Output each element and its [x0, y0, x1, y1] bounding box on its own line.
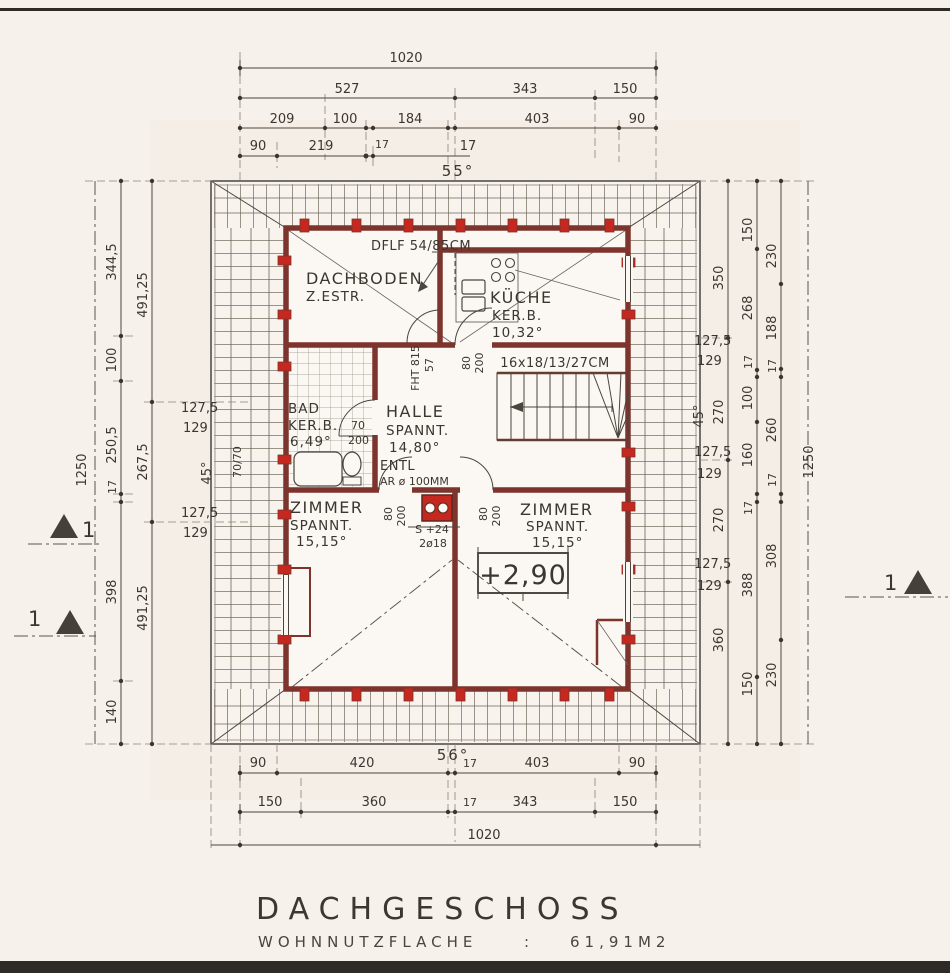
title-block: DACHGESCHOSS WOHNNUTZFLACHE : 61,91M2 — [256, 892, 670, 951]
room-zimmer-left-area: 15,15° — [296, 534, 347, 550]
dim-top-219: 219 — [309, 139, 334, 154]
bathtub — [294, 452, 342, 486]
right-door-width: 80 — [477, 507, 490, 521]
dim-bot-17b: 17 — [463, 796, 477, 809]
stair-note: 16x18/13/27CM — [500, 356, 609, 371]
dim-left-total: 1250 — [75, 453, 90, 486]
drawing-subtitle-colon: : — [524, 933, 534, 951]
scanned-floorplan-page: +2,90 DFLF 54/85CM DACHBODEN Z.ESTR. KÜC… — [0, 0, 950, 973]
dim-top-90a: 90 — [250, 139, 267, 154]
dim-right-270a: 270 — [712, 400, 727, 425]
roof-angle-right: 45° — [692, 404, 707, 427]
dim-left-17: 17 — [106, 480, 119, 494]
room-dachboden-name: DACHBODEN — [306, 269, 423, 288]
room-dachboden-type: Z.ESTR. — [306, 289, 365, 305]
window-left-zimmer — [281, 575, 291, 635]
skylight-label: DFLF 54/85CM — [371, 239, 471, 254]
dim-right-b150a: 150 — [741, 218, 756, 243]
floorplan-drawing: +2,90 DFLF 54/85CM DACHBODEN Z.ESTR. KÜC… — [0, 0, 950, 973]
bad-door-width: 70 — [351, 419, 365, 432]
room-bad-name: BAD — [288, 401, 320, 417]
bad-door-height: 200 — [348, 434, 369, 447]
dim-right-c17a: 17 — [766, 359, 779, 373]
dim-bot-360: 360 — [362, 795, 387, 810]
dim-left-knee1b: 129 — [183, 421, 208, 436]
fht-label: FHT 815 — [409, 345, 422, 391]
rafter-hatch-left — [214, 228, 286, 689]
chimney-label-2: 2ø18 — [419, 537, 447, 550]
chimney — [422, 495, 452, 521]
dim-top-17b: 17 — [460, 139, 477, 154]
kitchen-door-height: 200 — [473, 353, 486, 374]
dim-right-b388: 388 — [741, 573, 756, 598]
dim-left-knee2a: 127,5 — [181, 506, 218, 521]
dim-right-b268: 268 — [741, 296, 756, 321]
drawing-title: DACHGESCHOSS — [256, 892, 629, 927]
dim-right-c188: 188 — [765, 316, 780, 341]
dim-top-403: 403 — [525, 112, 550, 127]
dim-top-100: 100 — [333, 112, 358, 127]
dim-bot-420: 420 — [350, 756, 375, 771]
toilet-cistern — [343, 477, 361, 485]
vent-label-1: ENTL — [380, 459, 415, 474]
dim-left-491a: 491,25 — [136, 272, 151, 318]
room-zimmer-right-area: 15,15° — [532, 535, 583, 551]
left-door-width: 80 — [382, 507, 395, 521]
room-kueche-type: KER.B. — [492, 308, 542, 324]
toilet — [343, 452, 361, 476]
chimney-label-1: S +24 — [415, 523, 449, 536]
dim-right-270b: 270 — [712, 508, 727, 533]
dim-right-b100: 100 — [741, 386, 756, 411]
dim-left-344: 344,5 — [105, 243, 120, 280]
dim-right-knee1b: 129 — [697, 354, 722, 369]
dim-left-250: 250,5 — [105, 426, 120, 463]
post-size-label: 70/70 — [231, 446, 244, 478]
dim-top-90b: 90 — [629, 112, 646, 127]
dim-left-140: 140 — [105, 700, 120, 725]
left-door-height: 200 — [395, 506, 408, 527]
room-kueche-name: KÜCHE — [490, 288, 553, 307]
dim-bot-150b: 150 — [613, 795, 638, 810]
dim-left-267: 267,5 — [136, 443, 151, 480]
roof-angle-top: 55° — [442, 162, 475, 180]
dim-left-100: 100 — [105, 348, 120, 373]
dim-top-total: 1020 — [389, 51, 422, 66]
dim-left-knee1a: 127,5 — [181, 401, 218, 416]
dim-bot-17a: 17 — [463, 757, 477, 770]
vent-label-2: AR ø 100MM — [380, 475, 449, 488]
dim-left-knee2b: 129 — [183, 526, 208, 541]
section-number: 1 — [82, 518, 95, 542]
rafter-hatch-bottom — [214, 689, 697, 742]
dim-right-knee3b: 129 — [697, 579, 722, 594]
level-value: +2,90 — [479, 560, 567, 591]
dim-right-knee2a: 127,5 — [694, 445, 731, 460]
dim-right-b17b: 17 — [742, 501, 755, 515]
dim-right-total: 1250 — [802, 445, 817, 478]
room-halle-type: SPANNT. — [386, 423, 449, 439]
rafter-hatch-top — [214, 184, 697, 228]
dim-top-17a: 17 — [375, 138, 389, 151]
room-halle-area: 14,80° — [389, 440, 440, 456]
dim-right-350: 350 — [712, 266, 727, 291]
dim-left-491b: 491,25 — [136, 585, 151, 631]
section-number: 1 — [884, 571, 897, 595]
drawing-subtitle-value: 61,91M2 — [570, 933, 670, 951]
dim-bot-150a: 150 — [258, 795, 283, 810]
rafter-hatch-right — [628, 228, 697, 689]
dim-right-b160: 160 — [741, 443, 756, 468]
dim-top-209: 209 — [270, 112, 295, 127]
dim-right-b17a: 17 — [742, 355, 755, 369]
dim-right-knee1a: 127,5 — [694, 334, 731, 349]
dim-top-184: 184 — [398, 112, 423, 127]
dim-right-knee3a: 127,5 — [694, 557, 731, 572]
room-zimmer-right-name: ZIMMER — [520, 500, 594, 519]
dim-right-c260: 260 — [765, 418, 780, 443]
room-bad-type: KER.B. — [288, 418, 338, 434]
dim-right-knee2b: 129 — [697, 467, 722, 482]
room-bad-area: 6,49° — [290, 434, 332, 450]
drawing-subtitle-label: WOHNNUTZFLACHE — [258, 933, 477, 951]
dim-top-527: 527 — [335, 82, 360, 97]
window-kueche — [623, 256, 633, 302]
dim-right-b150b: 150 — [741, 672, 756, 697]
dim-right-c17b: 17 — [766, 473, 779, 487]
fht-57-label: 57 — [423, 358, 436, 372]
dim-bot-90b: 90 — [629, 756, 646, 771]
kitchen-door-width: 80 — [460, 356, 473, 370]
dim-top-343: 343 — [513, 82, 538, 97]
dim-right-c230b: 230 — [765, 663, 780, 688]
section-number: 1 — [28, 607, 41, 631]
window-right-zimmer — [623, 562, 633, 622]
room-halle-name: HALLE — [386, 402, 444, 421]
right-door-height: 200 — [490, 506, 503, 527]
dim-bot-343: 343 — [513, 795, 538, 810]
dim-bot-total: 1020 — [467, 828, 500, 843]
room-zimmer-right-type: SPANNT. — [526, 519, 589, 535]
dim-bot-90a: 90 — [250, 756, 267, 771]
dim-right-c308: 308 — [765, 544, 780, 569]
dim-right-360: 360 — [712, 628, 727, 653]
dim-top-150: 150 — [613, 82, 638, 97]
room-kueche-area: 10,32° — [492, 325, 543, 341]
room-zimmer-left-name: ZIMMER — [290, 498, 364, 517]
roof-angle-left: 45° — [200, 461, 215, 484]
dim-left-398: 398 — [105, 580, 120, 605]
room-zimmer-left-type: SPANNT. — [290, 518, 353, 534]
dim-bot-403: 403 — [525, 756, 550, 771]
dim-right-c230a: 230 — [765, 244, 780, 269]
